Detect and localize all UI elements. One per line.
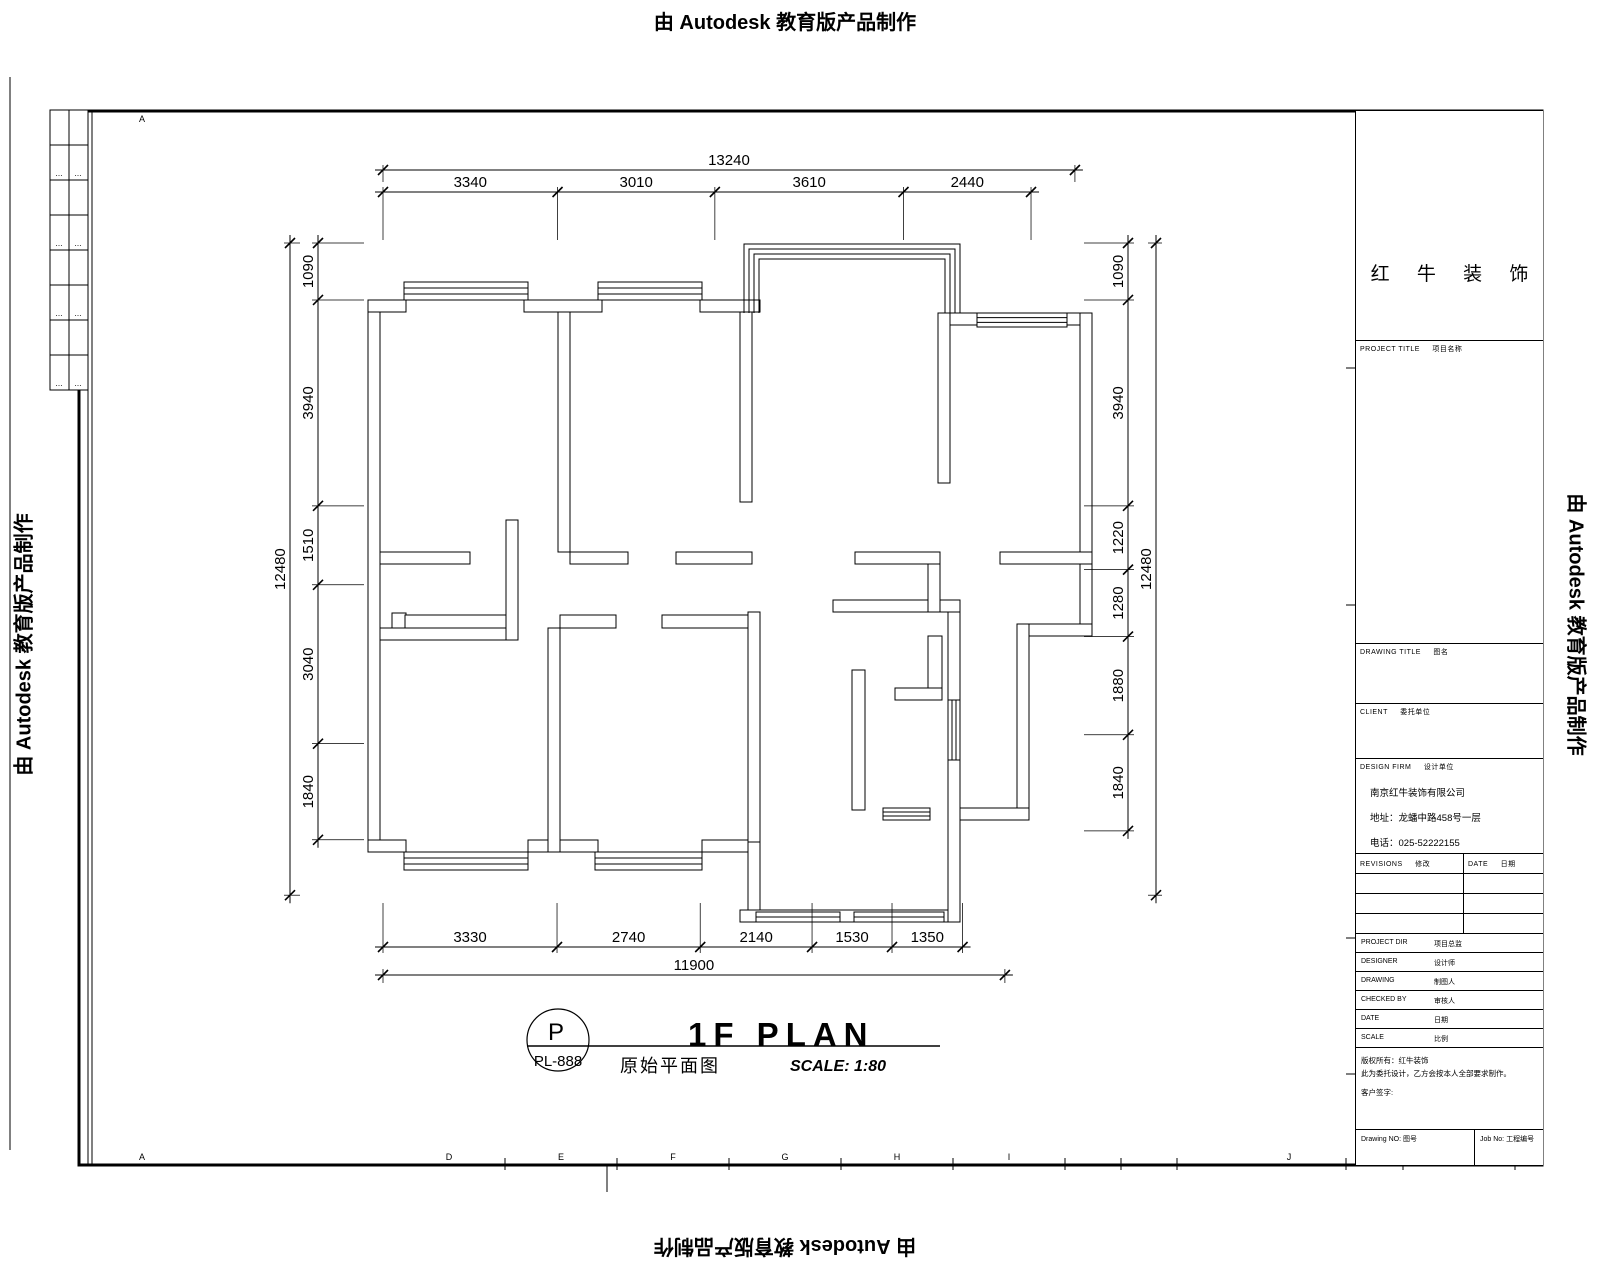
balcony-window-line [754, 254, 950, 313]
firm-company: 南京红牛装饰有限公司 [1370, 781, 1481, 806]
staff-en: DESIGNER [1361, 958, 1398, 965]
dim-text: 3940 [300, 386, 317, 419]
drawing-title-label: DRAWING TITLE 图名 [1360, 647, 1448, 657]
firm-info: 南京红牛装饰有限公司 地址：龙蟠中路458号一层 电话：025-52222155 [1370, 781, 1481, 856]
dim-text: 1510 [300, 529, 317, 562]
dim-text: 1090 [1110, 255, 1127, 288]
wall [368, 300, 406, 312]
revisions-divider [1463, 914, 1464, 933]
dim-text: 12480 [272, 548, 289, 590]
staff-en: DATE [1361, 1015, 1379, 1022]
dim-text: 2440 [951, 174, 984, 191]
dim-text: 11900 [674, 957, 715, 974]
dim-text: 1880 [1110, 669, 1127, 702]
wall [948, 612, 960, 922]
dim-text: 3610 [792, 174, 825, 191]
wall [558, 312, 570, 552]
grid-letter-bottom: J [1287, 1152, 1292, 1162]
window-frame [404, 852, 528, 870]
wall [380, 628, 506, 640]
wall [524, 300, 602, 312]
window-frame [404, 282, 528, 300]
staff-zh: 比例 [1434, 1034, 1448, 1044]
staff-zh: 设计师 [1434, 958, 1455, 968]
staff-zh: 项目总监 [1434, 939, 1462, 949]
dim-text: 3940 [1110, 386, 1127, 419]
wall [895, 688, 942, 700]
drawing-title-zh: 图名 [1433, 649, 1448, 656]
dim-text: 1350 [911, 929, 944, 946]
dim-text: 12480 [1138, 548, 1155, 590]
wall [1017, 624, 1029, 820]
revision-strip-mark: ⋯ [75, 243, 82, 250]
staff-zh: 制图人 [1434, 977, 1455, 987]
revisions-divider [1463, 854, 1464, 873]
revisions-date-zh: 日期 [1501, 861, 1516, 868]
wall [548, 628, 560, 852]
revisions-label: REVISIONS 修改 [1360, 859, 1430, 869]
window-frame [977, 313, 1067, 327]
client-signature-label: 客户签字: [1361, 1086, 1536, 1099]
staff-zh: 审核人 [1434, 996, 1455, 1006]
wall [528, 840, 598, 852]
dim-text: 3330 [453, 929, 486, 946]
staff-row-designer: DESIGNER 设计师 [1356, 952, 1543, 971]
window-lines [598, 282, 702, 300]
firm-address: 地址：龙蟠中路458号一层 [1370, 806, 1481, 831]
staff-row-checked: CHECKED BY 审核人 [1356, 990, 1543, 1009]
logo-text: 红 牛 装 饰 [1356, 259, 1543, 286]
staff-en: DRAWING [1361, 977, 1395, 984]
drawing-title-en: DRAWING TITLE [1360, 649, 1421, 656]
balcony-window-line [759, 259, 945, 313]
revision-strip-mark: ⋯ [56, 173, 63, 180]
window-frame [883, 808, 930, 820]
dim-text: 3340 [454, 174, 487, 191]
revisions-date-label: DATE 日期 [1468, 859, 1516, 869]
section-design-firm: DESIGN FIRM 设计单位 南京红牛装饰有限公司 地址：龙蟠中路458号一… [1356, 758, 1543, 853]
window-lines [756, 912, 840, 922]
dimension-chain: 11900 [375, 957, 1013, 983]
revisions-row-3 [1356, 913, 1543, 933]
revision-strip-mark: ⋯ [75, 313, 82, 320]
job-no-en: Job No: [1480, 1136, 1504, 1143]
wall [380, 552, 470, 564]
dim-text: 1090 [300, 255, 317, 288]
window-lines [977, 313, 1067, 327]
drawing-no-en: Drawing NO: [1361, 1136, 1401, 1143]
grid-letter-bottom: A [139, 1152, 145, 1162]
section-project-title: PROJECT TITLE 项目名称 [1356, 340, 1543, 643]
dimension-chain: 12480 [1138, 235, 1162, 903]
grid-letter-bottom: F [670, 1152, 676, 1162]
job-no-cell: Job No: 工程编号 [1474, 1130, 1543, 1165]
notes-line2: 此为委托设计，乙方会按本人全部要求制作。 [1361, 1067, 1536, 1080]
wall [748, 612, 760, 842]
revisions-row-1 [1356, 873, 1543, 893]
window-lines [595, 852, 702, 870]
client-zh: 委托单位 [1400, 709, 1430, 716]
window-lines [883, 808, 930, 820]
main-frame [79, 111, 1542, 1165]
wall [676, 552, 752, 564]
section-numbers: Drawing NO: 图号 Job No: 工程编号 [1356, 1129, 1543, 1165]
revisions-divider [1463, 874, 1464, 893]
wall [368, 300, 380, 852]
section-drawing-title: DRAWING TITLE 图名 [1356, 643, 1543, 703]
dimension-chain: 3340301036102440 [375, 174, 1039, 240]
dimension-chain: 10903940151030401840 [300, 235, 364, 848]
drawing-sheet: 由 Autodesk 教育版产品制作 由 Autodesk 教育版产品制作 由 … [0, 0, 1600, 1280]
wall [740, 312, 752, 502]
wall [852, 670, 865, 810]
dim-text: 1840 [1110, 766, 1127, 799]
wall [938, 313, 950, 483]
window-lines [948, 700, 960, 760]
plan-walls [368, 300, 1092, 922]
plan-title: 1F PLAN [688, 1016, 988, 1054]
revisions-zh: 修改 [1415, 861, 1430, 868]
staff-en: SCALE [1361, 1034, 1384, 1041]
plan-title-chinese: 原始平面图 [620, 1052, 760, 1078]
wall [506, 520, 518, 640]
dim-text: 3010 [620, 174, 653, 191]
wall [570, 552, 628, 564]
grid-letter-bottom: E [558, 1152, 564, 1162]
staff-zh: 日期 [1434, 1015, 1448, 1025]
revisions-header-row: REVISIONS 修改 DATE 日期 [1356, 853, 1543, 873]
title-mark-number: PL-888 [534, 1053, 582, 1070]
wall [368, 840, 406, 852]
drawing-no-cell: Drawing NO: 图号 [1356, 1130, 1474, 1165]
staff-row-drawing: DRAWING 制图人 [1356, 971, 1543, 990]
dim-text: 1840 [300, 775, 317, 808]
project-title-zh: 项目名称 [1432, 346, 1462, 353]
design-firm-label: DESIGN FIRM 设计单位 [1360, 762, 1454, 772]
grid-letter-top: A [139, 114, 145, 124]
wall [1000, 552, 1092, 564]
grid-letter-bottom: H [894, 1152, 901, 1162]
title-mark-letter: P [548, 1019, 564, 1046]
dimension-chain: 12480 [272, 235, 300, 903]
wall [700, 300, 760, 312]
window-frame [598, 282, 702, 300]
section-notes: 版权所有：红牛装饰 此为委托设计，乙方会按本人全部要求制作。 客户签字: [1356, 1047, 1543, 1129]
window-lines [404, 852, 528, 870]
grid-letter-bottom: G [781, 1152, 788, 1162]
dim-text: 13240 [708, 152, 750, 169]
dim-text: 1530 [835, 929, 868, 946]
revision-strip-mark: ⋯ [75, 173, 82, 180]
plan-scale-text: SCALE: 1:80 [790, 1058, 950, 1076]
drawing-no-zh: 图号 [1403, 1136, 1417, 1143]
wall [560, 615, 616, 628]
job-no-zh: 工程编号 [1506, 1136, 1534, 1143]
window-lines [404, 282, 528, 300]
title-block: 红 牛 装 饰 PROJECT TITLE 项目名称 DRAWING TITLE… [1355, 111, 1543, 1165]
staff-en: PROJECT DIR [1361, 939, 1408, 946]
wall [1080, 313, 1092, 636]
wall [392, 613, 406, 628]
revisions-divider [1463, 894, 1464, 913]
wall [855, 552, 940, 564]
design-firm-en: DESIGN FIRM [1360, 764, 1411, 771]
client-en: CLIENT [1360, 709, 1388, 716]
revisions-row-2 [1356, 893, 1543, 913]
window-frame [595, 852, 702, 870]
staff-row-project-dir: PROJECT DIR 项目总监 [1356, 933, 1543, 952]
wall [833, 600, 960, 612]
client-label: CLIENT 委托单位 [1360, 707, 1430, 717]
revisions-en: REVISIONS [1360, 861, 1403, 868]
revision-strip-mark: ⋯ [56, 313, 63, 320]
project-title-en: PROJECT TITLE [1360, 346, 1420, 353]
section-client: CLIENT 委托单位 [1356, 703, 1543, 758]
notes-line1: 版权所有：红牛装饰 [1361, 1054, 1536, 1067]
grid-letter-bottom: I [1008, 1152, 1011, 1162]
revision-strip-mark: ⋯ [56, 383, 63, 390]
revisions-date-en: DATE [1468, 861, 1488, 868]
wall [405, 615, 506, 628]
staff-row-scale: SCALE 比例 [1356, 1028, 1543, 1047]
grid-letter-bottom: D [446, 1152, 453, 1162]
staff-row-date: DATE 日期 [1356, 1009, 1543, 1028]
dim-text: 1280 [1110, 586, 1127, 619]
project-title-label: PROJECT TITLE 项目名称 [1360, 344, 1462, 354]
dim-text: 3040 [300, 648, 317, 681]
revision-strip-mark: ⋯ [56, 243, 63, 250]
dim-text: 1220 [1110, 521, 1127, 554]
dim-text: 2140 [739, 929, 772, 946]
wall [662, 615, 750, 628]
window-lines [854, 912, 944, 922]
notes-text: 版权所有：红牛装饰 此为委托设计，乙方会按本人全部要求制作。 客户签字: [1361, 1054, 1536, 1099]
staff-en: CHECKED BY [1361, 996, 1407, 1003]
dim-text: 2740 [612, 929, 645, 946]
window-frame [948, 700, 960, 760]
design-firm-zh: 设计单位 [1424, 764, 1454, 771]
revision-strip-mark: ⋯ [75, 383, 82, 390]
